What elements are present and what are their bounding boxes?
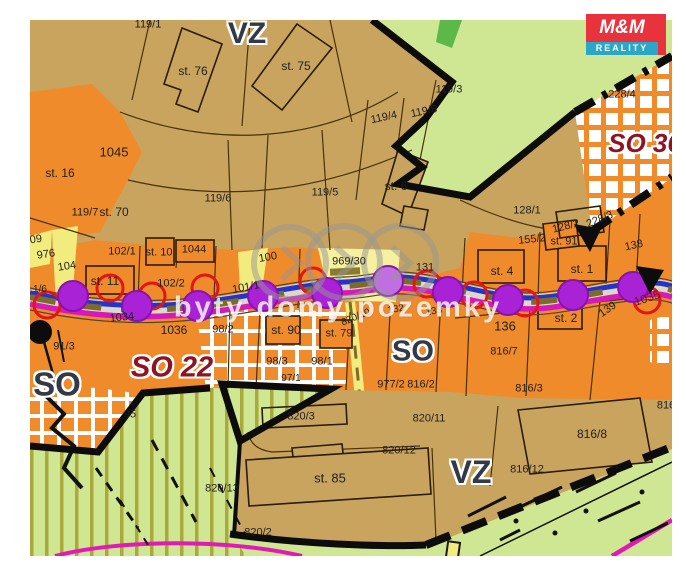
parcel-label: 816/8 bbox=[577, 428, 607, 440]
parcel-label: 969/30 bbox=[332, 257, 366, 268]
map-viewport[interactable]: 119/1st. 76st. 75119/3119/4119/8228/4104… bbox=[30, 20, 672, 556]
parcel-label: 816/7 bbox=[490, 347, 518, 358]
parcel-label: 820/12 bbox=[382, 446, 416, 457]
map-label-layer: 119/1st. 76st. 75119/3119/4119/8228/4104… bbox=[30, 20, 672, 556]
parcel-label: 128/1 bbox=[513, 206, 541, 217]
parcel-label: 816/2 bbox=[407, 380, 435, 391]
zone-label: SO bbox=[33, 368, 81, 401]
watermark-text: byty domy pozemky bbox=[174, 292, 502, 325]
parcel-label: st. 79 bbox=[326, 329, 353, 340]
parcel-label: 97/1 bbox=[281, 374, 300, 384]
parcel-label: st. 85 bbox=[314, 472, 346, 485]
parcel-label: 1044 bbox=[182, 245, 206, 256]
zone-label: VZ bbox=[228, 20, 266, 49]
parcel-label: 976 bbox=[36, 248, 56, 261]
parcel-label: 119/1 bbox=[135, 20, 162, 31]
parcel-label: 102/2 bbox=[157, 279, 185, 290]
parcel-label: 128/2 bbox=[551, 218, 580, 235]
parcel-label: 1034 bbox=[109, 311, 135, 324]
zone-label: SO bbox=[392, 338, 434, 367]
parcel-label: 1/6 bbox=[33, 285, 47, 295]
zone-label: VZ bbox=[451, 456, 492, 488]
parcel-label: st. 6 bbox=[385, 180, 408, 192]
mm-reality-logo: M&M REALITY bbox=[586, 14, 668, 57]
parcel-label: st. 10 bbox=[146, 248, 173, 259]
zoning-map-page: 119/1st. 76st. 75119/3119/4119/8228/4104… bbox=[0, 0, 686, 575]
parcel-label: 119/5 bbox=[312, 188, 339, 199]
parcel-label: 95 bbox=[124, 410, 136, 421]
parcel-label: 820/2 bbox=[244, 528, 272, 539]
parcel-label: st. 76 bbox=[178, 65, 207, 77]
parcel-label: 100 bbox=[258, 251, 278, 265]
parcel-label: 816/12 bbox=[510, 465, 544, 476]
parcel-label: st. 16 bbox=[45, 167, 74, 179]
parcel-label: 119/3 bbox=[436, 85, 463, 96]
parcel-label: 98/1 bbox=[311, 357, 332, 368]
parcel-label: 131 bbox=[416, 263, 434, 274]
parcel-label: 104 bbox=[57, 260, 77, 273]
parcel-label: 119/4 bbox=[370, 110, 398, 126]
parcel-label: st. 2 bbox=[555, 312, 578, 324]
parcel-label: 228/4 bbox=[608, 90, 636, 101]
parcel-label: 98/2 bbox=[212, 325, 233, 336]
parcel-label: 816 bbox=[657, 401, 672, 412]
parcel-label: 102/1 bbox=[108, 247, 136, 258]
parcel-label: 820/13 bbox=[205, 484, 239, 495]
zone-label: SO 36 bbox=[608, 130, 672, 156]
parcel-label: 98/3 bbox=[266, 357, 287, 368]
parcel-label: st. 1 bbox=[571, 263, 594, 275]
logo-red-strip bbox=[658, 14, 666, 55]
parcel-label: 09 bbox=[30, 234, 43, 247]
parcel-label: 138 bbox=[624, 239, 644, 254]
parcel-label: st. 11 bbox=[91, 275, 119, 287]
parcel-label: 91/3 bbox=[53, 342, 74, 353]
zone-label: SO 22 bbox=[131, 354, 213, 383]
parcel-label: 228/3 bbox=[585, 210, 615, 231]
parcel-label: st. 70 bbox=[99, 206, 128, 218]
parcel-label: 820/11 bbox=[413, 414, 446, 425]
parcel-label: st. 75 bbox=[281, 60, 310, 72]
parcel-label: st. 4 bbox=[491, 265, 514, 277]
parcel-label: 119/6 bbox=[205, 194, 232, 205]
parcel-label: 1045 bbox=[100, 146, 129, 159]
parcel-label: 1036 bbox=[161, 324, 188, 336]
parcel-label: 119/8 bbox=[410, 104, 438, 120]
parcel-label: 119/7 bbox=[72, 208, 99, 219]
parcel-label: 139 bbox=[597, 300, 618, 320]
logo-reality-text: REALITY bbox=[586, 42, 658, 55]
parcel-label: 155/2 bbox=[518, 233, 547, 247]
parcel-label: 1035 bbox=[632, 288, 661, 308]
parcel-label: 816/3 bbox=[515, 384, 543, 395]
parcel-label: st. 91 bbox=[551, 237, 578, 248]
logo-mm-text: M&M bbox=[586, 14, 658, 42]
parcel-label: st. 90 bbox=[271, 324, 300, 336]
parcel-label: 977/2 bbox=[377, 380, 405, 391]
parcel-label: 820/3 bbox=[287, 412, 315, 423]
